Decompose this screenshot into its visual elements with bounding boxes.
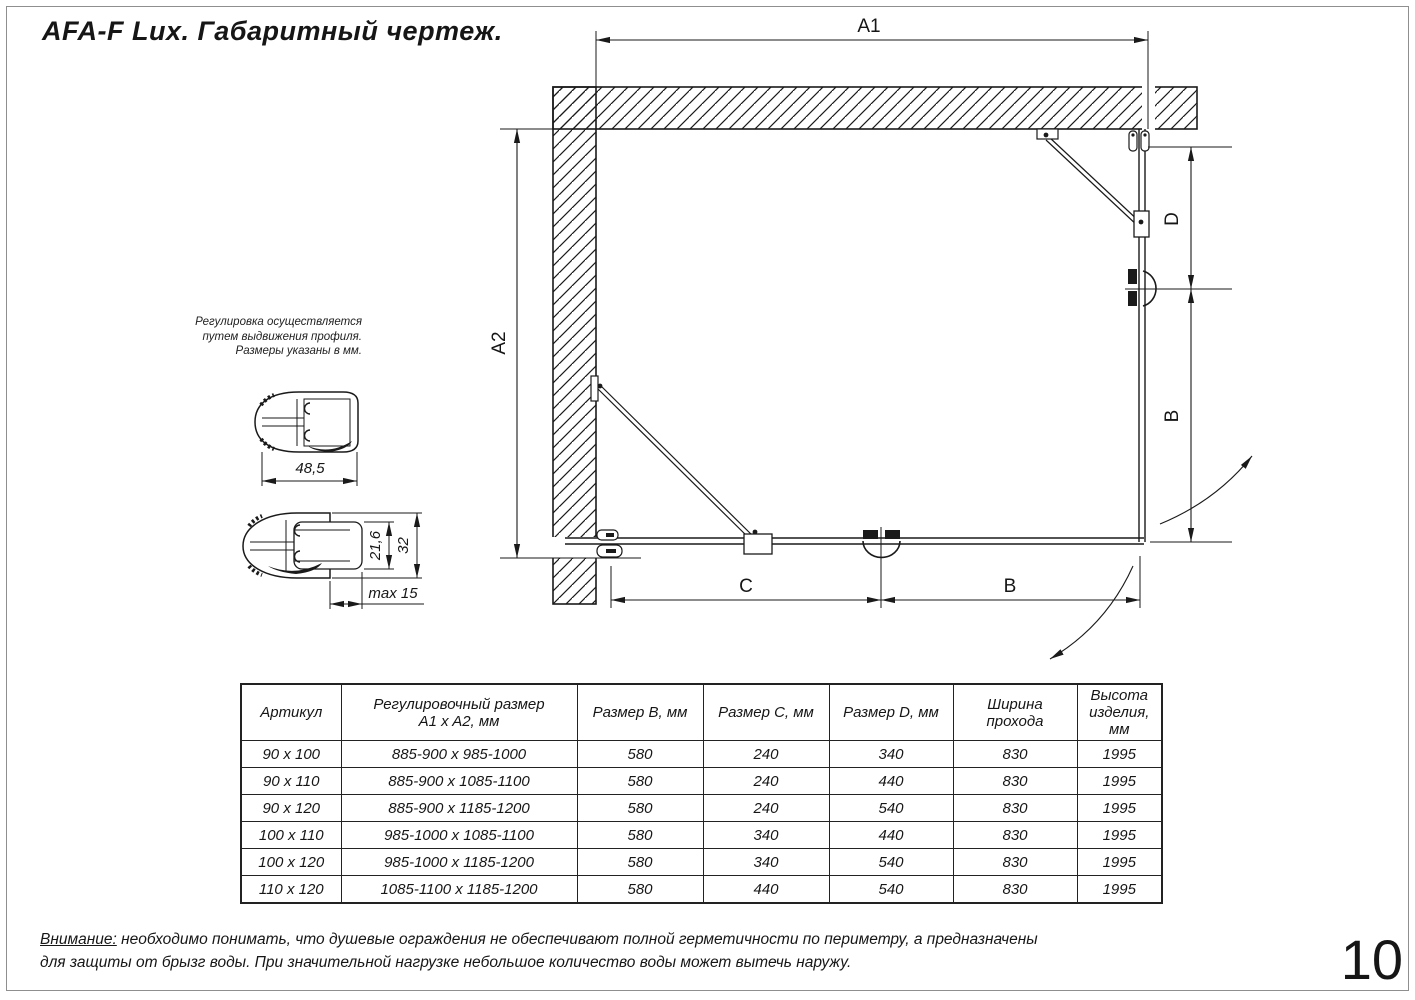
table-cell: 885-900 x 985-1000 [341, 741, 577, 768]
table-cell: 540 [829, 876, 953, 904]
article-cell: 100 x 110 [241, 822, 341, 849]
table-row: 100 x 110 985-1000 x 1085-1100 580 340 4… [241, 822, 1162, 849]
table-cell: 830 [953, 849, 1077, 876]
table-cell: 830 [953, 876, 1077, 904]
col-header-height: Высота изделия, мм [1077, 684, 1162, 741]
wall-slot-left [551, 537, 598, 558]
table-row: 100 x 120 985-1000 x 1185-1200 580 340 5… [241, 849, 1162, 876]
col-header-size-b: Размер B, мм [577, 684, 703, 741]
table-cell: 340 [703, 822, 829, 849]
header-row: Артикул Регулировочный размер A1 x A2, м… [241, 684, 1162, 741]
table-cell: 1995 [1077, 795, 1162, 822]
main-plan-view: A1 A2 D B C [489, 16, 1252, 659]
article-cell: 100 x 120 [241, 849, 341, 876]
table-cell: 440 [829, 822, 953, 849]
col-header-size-d: Размер D, мм [829, 684, 953, 741]
dimension-label-b-bottom: B [1004, 576, 1017, 597]
warning-text: Внимание: необходимо понимать, что душев… [40, 928, 1180, 974]
dimension-label-max-15: max 15 [368, 585, 418, 602]
table-cell: 540 [829, 849, 953, 876]
table-cell: 1995 [1077, 822, 1162, 849]
dimension-label-d: D [1162, 212, 1183, 226]
table-cell: 985-1000 x 1085-1100 [341, 822, 577, 849]
col-header-adjust-size: Регулировочный размер A1 x A2, мм [341, 684, 577, 741]
table-cell: 340 [829, 741, 953, 768]
table-row: 90 x 110 885-900 x 1085-1100 580 240 440… [241, 768, 1162, 795]
dimension-21-6: 21,6 [364, 522, 394, 569]
page-number: 10 [1341, 932, 1403, 988]
table-cell: 340 [703, 849, 829, 876]
support-brace-left [591, 376, 772, 554]
table-cell: 1995 [1077, 876, 1162, 904]
warning-line-2: для защиты от брызг воды. При значительн… [40, 954, 851, 971]
table-cell: 240 [703, 768, 829, 795]
table-cell: 985-1000 x 1185-1200 [341, 849, 577, 876]
table-cell: 1995 [1077, 768, 1162, 795]
wall-top [553, 87, 1197, 129]
wall-left [553, 87, 596, 604]
table-cell: 1085-1100 x 1185-1200 [341, 876, 577, 904]
hinge-front [863, 527, 900, 608]
col-header-size-c: Размер C, мм [703, 684, 829, 741]
door-swing-arc-right [1160, 456, 1252, 524]
table-cell: 830 [953, 822, 1077, 849]
table-cell: 885-900 x 1185-1200 [341, 795, 577, 822]
article-cell: 110 x 120 [241, 876, 341, 904]
dimension-label-c: C [739, 576, 753, 597]
dimension-label-a1: A1 [857, 16, 880, 37]
table-cell: 580 [577, 849, 703, 876]
table-cell: 440 [829, 768, 953, 795]
table-cell: 830 [953, 768, 1077, 795]
table-cell: 580 [577, 822, 703, 849]
profile-section-1: 48,5 [255, 392, 358, 486]
article-cell: 90 x 110 [241, 768, 341, 795]
article-cell: 90 x 120 [241, 795, 341, 822]
table-row: 110 x 120 1085-1100 x 1185-1200 580 440 … [241, 876, 1162, 904]
sliding-extension-profile [294, 522, 362, 569]
door-swing-arc-front [1050, 566, 1133, 659]
table-row: 90 x 120 885-900 x 1185-1200 580 240 540… [241, 795, 1162, 822]
dimension-label-21-6: 21,6 [367, 530, 384, 561]
table-cell: 1995 [1077, 849, 1162, 876]
spec-table: Артикул Регулировочный размер A1 x A2, м… [240, 683, 1163, 904]
table-cell: 830 [953, 741, 1077, 768]
table-cell: 1995 [1077, 741, 1162, 768]
dimension-b-right: B [1150, 289, 1232, 542]
dimension-label-a2: A2 [489, 331, 510, 354]
table-row: 90 x 100 885-900 x 985-1000 580 240 340 … [241, 741, 1162, 768]
col-header-pass-width: Ширина прохода [953, 684, 1077, 741]
dimension-c: C [611, 566, 881, 608]
brace-glass-mount [744, 534, 772, 554]
dimension-label-b-right: B [1162, 410, 1183, 423]
table-cell: 830 [953, 795, 1077, 822]
brace-wall-bracket [591, 376, 598, 401]
warning-label: Внимание: [40, 931, 117, 948]
dimension-b-bottom: B [881, 556, 1140, 608]
dimension-d: D [1148, 147, 1232, 289]
hinge-right [1125, 269, 1232, 306]
table-cell: 580 [577, 876, 703, 904]
table-cell: 580 [577, 795, 703, 822]
catalog-page: AFA-F Lux. Габаритный чертеж. Регулировк… [0, 0, 1415, 1000]
dimension-label-48-5: 48,5 [295, 460, 325, 477]
table-cell: 240 [703, 795, 829, 822]
profile-section-2: 21,6 32 max 15 [243, 513, 424, 609]
dimension-48-5: 48,5 [262, 452, 357, 486]
table-cell: 240 [703, 741, 829, 768]
dimension-label-32: 32 [395, 537, 412, 554]
table-cell: 885-900 x 1085-1100 [341, 768, 577, 795]
table-cell: 440 [703, 876, 829, 904]
col-header-article: Артикул [241, 684, 341, 741]
article-cell: 90 x 100 [241, 741, 341, 768]
warning-line-1: необходимо понимать, что душевые огражде… [117, 931, 1038, 948]
table-cell: 540 [829, 795, 953, 822]
table-cell: 580 [577, 768, 703, 795]
table-cell: 580 [577, 741, 703, 768]
